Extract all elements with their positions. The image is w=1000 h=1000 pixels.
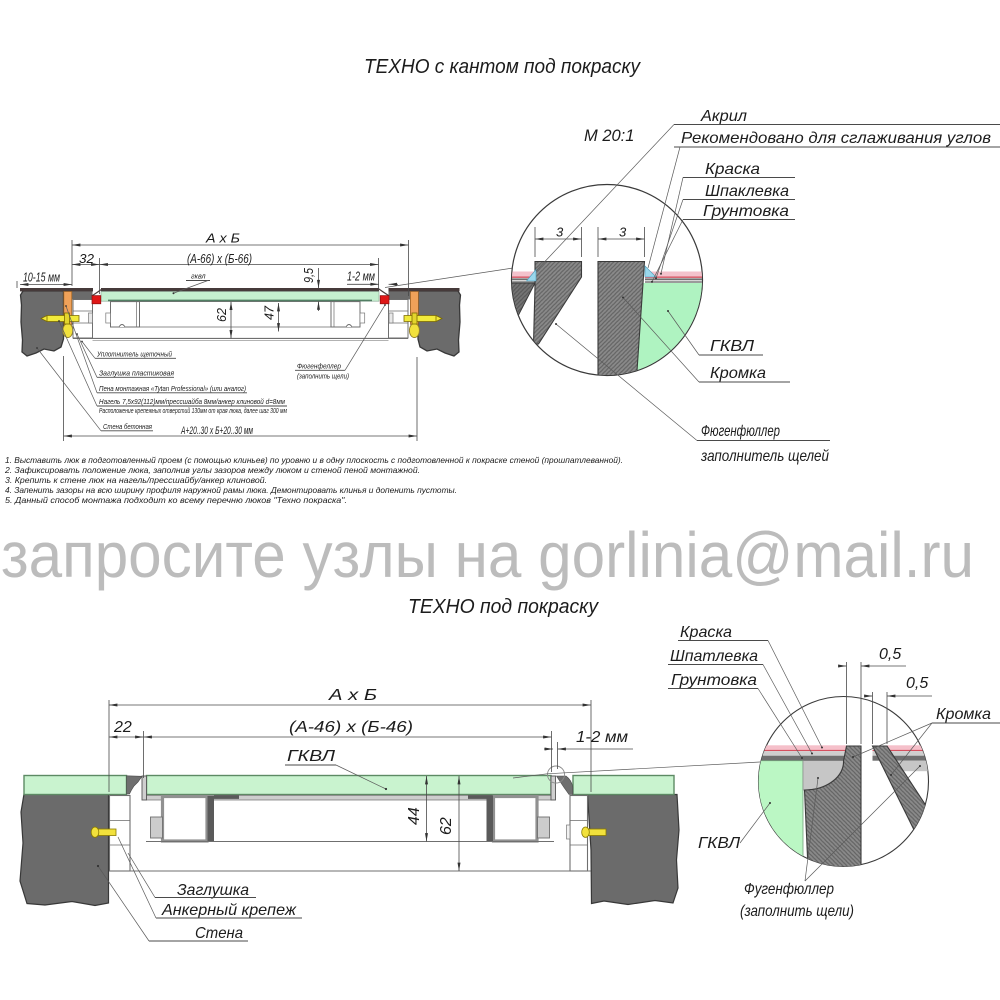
svg-text:заполнитель щелей: заполнитель щелей xyxy=(700,448,829,465)
svg-text:Краска: Краска xyxy=(705,161,760,178)
svg-text:47: 47 xyxy=(262,305,277,320)
svg-text:10-15 мм: 10-15 мм xyxy=(23,270,60,285)
svg-text:44: 44 xyxy=(406,807,423,825)
svg-text:гквл: гквл xyxy=(191,272,206,281)
svg-text:Рекомендовано для сглаживания: Рекомендовано для сглаживания углов xyxy=(681,130,991,147)
svg-text:ТЕХНО под покраску: ТЕХНО под покраску xyxy=(408,596,599,618)
svg-text:Шпаклевка: Шпаклевка xyxy=(705,183,789,200)
svg-text:(заполнить щели): (заполнить щели) xyxy=(740,903,854,920)
svg-text:(А-66) х (Б-66): (А-66) х (Б-66) xyxy=(187,251,252,266)
svg-text:32: 32 xyxy=(79,251,95,266)
svg-text:ГКВЛ: ГКВЛ xyxy=(710,338,754,355)
svg-text:2. Зафиксировать положение люк: 2. Зафиксировать положение люка, заполни… xyxy=(4,465,420,475)
svg-text:22: 22 xyxy=(113,719,132,736)
svg-text:(А-46) х (Б-46): (А-46) х (Б-46) xyxy=(289,719,413,736)
svg-text:Уплотнитель щеточный: Уплотнитель щеточный xyxy=(96,350,172,359)
svg-text:Анкерный крепеж: Анкерный крепеж xyxy=(161,902,297,919)
svg-text:3: 3 xyxy=(619,225,627,240)
svg-text:Кромка: Кромка xyxy=(710,365,766,382)
svg-text:Стена: Стена xyxy=(195,925,243,942)
svg-text:4. Запенить зазоры на всю шири: 4. Запенить зазоры на всю ширину профиля… xyxy=(5,485,457,495)
svg-text:0,5: 0,5 xyxy=(879,646,901,663)
svg-text:А х Б: А х Б xyxy=(205,231,241,246)
svg-text:Пена монтажная «Tytan Professi: Пена монтажная «Tytan Professional» (или… xyxy=(99,384,246,393)
svg-text:Заглушка пластиковая: Заглушка пластиковая xyxy=(99,369,174,378)
svg-text:62: 62 xyxy=(214,307,229,322)
svg-text:(заполнить щели): (заполнить щели) xyxy=(297,372,349,381)
svg-text:9,5: 9,5 xyxy=(301,267,316,283)
svg-text:Грунтовка: Грунтовка xyxy=(703,203,789,220)
svg-text:Расположение крепежных отверст: Расположение крепежных отверстий 130мм о… xyxy=(99,406,287,415)
svg-text:62: 62 xyxy=(438,817,455,835)
svg-text:0,5: 0,5 xyxy=(906,675,928,692)
svg-text:Кромка: Кромка xyxy=(936,706,991,723)
svg-text:ГКВЛ: ГКВЛ xyxy=(698,835,740,852)
svg-text:Акрил: Акрил xyxy=(700,108,747,125)
svg-text:Фюгенфюллер: Фюгенфюллер xyxy=(701,423,780,440)
svg-text:3: 3 xyxy=(556,225,564,240)
svg-text:ТЕХНО с кантом под покраску: ТЕХНО с кантом под покраску xyxy=(364,56,641,78)
svg-text:Фугенфюллер: Фугенфюллер xyxy=(744,881,834,898)
svg-text:М 20:1: М 20:1 xyxy=(584,127,634,145)
svg-text:5. Данный способ монтажа подхо: 5. Данный способ монтажа подходит ко все… xyxy=(5,495,347,505)
svg-text:1. Выставить люк в подготовлен: 1. Выставить люк в подготовленный проем … xyxy=(5,455,623,465)
svg-text:Шпатлевка: Шпатлевка xyxy=(670,648,758,665)
svg-text:Стена бетонная: Стена бетонная xyxy=(103,422,152,431)
svg-text:3. Крепить к стене люк на наге: 3. Крепить к стене люк на нагель/прессша… xyxy=(5,475,267,485)
svg-text:Краска: Краска xyxy=(680,624,732,641)
svg-text:Заглушка: Заглушка xyxy=(177,882,249,899)
svg-text:Нагель 7,5х92(112)мм/прессшайб: Нагель 7,5х92(112)мм/прессшайба 8мм/анке… xyxy=(99,397,285,406)
svg-text:А х Б: А х Б xyxy=(328,687,377,704)
svg-text:запросите узлы на gorlinia@mai: запросите узлы на gorlinia@mail.ru xyxy=(1,519,974,591)
svg-text:ГКВЛ: ГКВЛ xyxy=(287,748,335,765)
svg-text:1-2 мм: 1-2 мм xyxy=(347,269,375,284)
svg-text:А+20..30 х Б+20..30 мм: А+20..30 х Б+20..30 мм xyxy=(180,425,253,437)
svg-text:Грунтовка: Грунтовка xyxy=(671,672,757,689)
svg-text:Фюгенфеллер: Фюгенфеллер xyxy=(297,362,341,371)
svg-text:1-2 мм: 1-2 мм xyxy=(576,729,628,746)
